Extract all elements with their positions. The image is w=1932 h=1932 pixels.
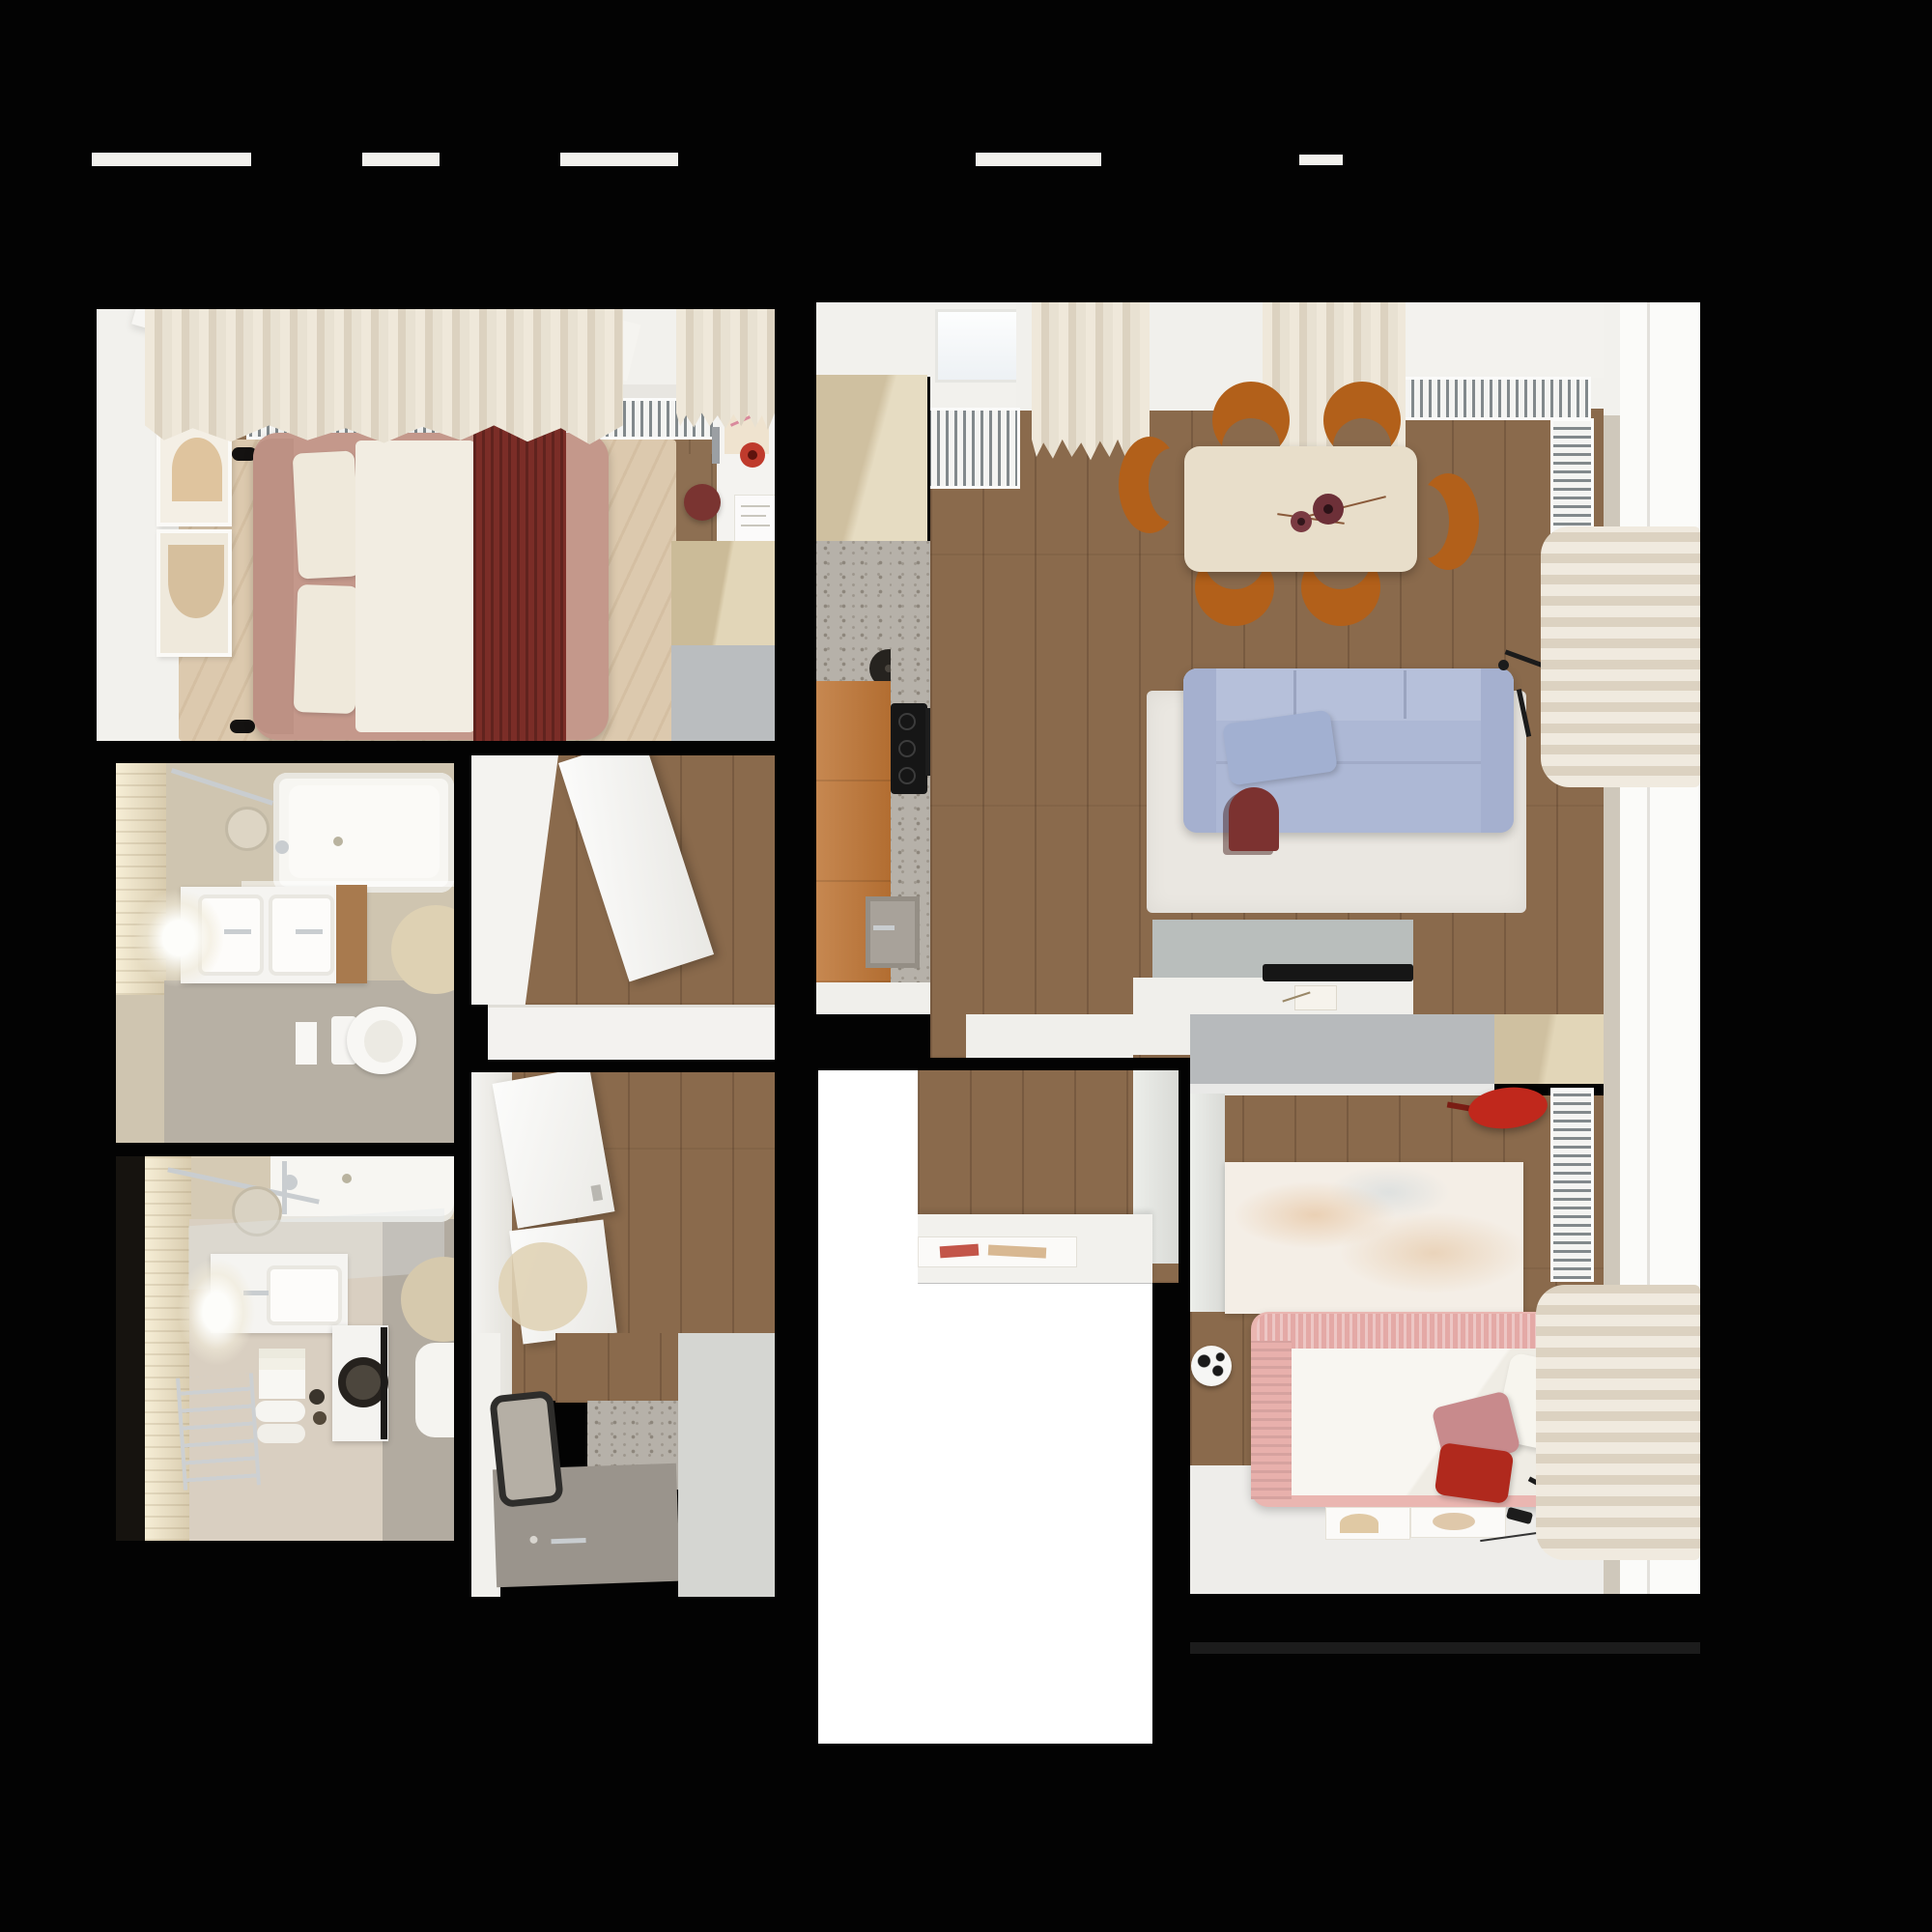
- toilet-bowl: [347, 1007, 416, 1074]
- white-bench: [966, 1014, 1133, 1058]
- sofa-back: [1183, 668, 1514, 721]
- hand-shower: [275, 840, 289, 854]
- floor-plan-canvas: [0, 0, 1932, 1932]
- tub-basin: [289, 785, 440, 878]
- shower-right-wall: [678, 1333, 775, 1597]
- wall-art-frame: [156, 529, 232, 657]
- bed-pillow: [294, 584, 360, 714]
- bed-blanket-red: [473, 423, 566, 741]
- curtains: [1032, 302, 1150, 462]
- bed-headboard: [253, 439, 294, 734]
- curtains-bunched: [1536, 1285, 1700, 1560]
- closet-band: [1190, 1014, 1494, 1084]
- floor-lamp-head: [1498, 660, 1509, 670]
- closet-lip: [1190, 1084, 1494, 1095]
- cooktop: [891, 703, 927, 794]
- bed-headboard-cushion: [1257, 1314, 1572, 1349]
- toiletry: [313, 1411, 327, 1425]
- double-bed: [253, 433, 609, 740]
- ground-reflection: [1190, 1642, 1700, 1654]
- hall-bench: [488, 1005, 775, 1060]
- dining-chair: [1119, 437, 1180, 533]
- sink: [267, 1265, 342, 1325]
- bed-blanket: [1251, 1341, 1292, 1499]
- round-mirror: [178, 1258, 255, 1366]
- art-shape: [168, 545, 224, 618]
- room-living-dining: [930, 302, 1604, 1058]
- wall-lamp: [230, 720, 255, 733]
- kitchen-sink: [866, 896, 920, 968]
- pillow-red: [1435, 1442, 1515, 1504]
- washing-machine: [332, 1325, 388, 1441]
- faucet: [873, 925, 895, 930]
- dark-red-vase: [1313, 494, 1344, 525]
- curtains: [145, 309, 623, 444]
- red-vase: [740, 442, 765, 468]
- shower-rail: [171, 768, 273, 806]
- dark-red-vase: [1291, 511, 1312, 532]
- towel-radiator: [176, 1373, 261, 1490]
- red-side-table: [1229, 787, 1279, 851]
- washer-trim: [381, 1327, 387, 1439]
- artwork-rug: [1225, 1162, 1523, 1314]
- closet-gray: [671, 645, 775, 741]
- sofa-arm: [1183, 668, 1216, 833]
- dark-mirror: [489, 1390, 564, 1508]
- upper-cabinet: [816, 375, 927, 541]
- floor-artwork: [1410, 1507, 1506, 1538]
- round-rug: [498, 1242, 587, 1331]
- room-corridor: [471, 1072, 775, 1597]
- vase-mouth: [748, 450, 757, 460]
- wardrobe: [671, 541, 775, 645]
- dining-table: [1184, 446, 1417, 572]
- towel-roll: [257, 1424, 305, 1443]
- radiator: [930, 408, 1020, 489]
- room-bathroom-bottom: [116, 1156, 454, 1541]
- wall-tick: [976, 153, 1101, 166]
- shower-room-floor: [555, 1333, 678, 1403]
- towel-stack: [259, 1349, 305, 1399]
- faucet: [224, 929, 251, 934]
- desk-papers: [734, 495, 775, 545]
- kitchen-wall-top: [816, 302, 930, 377]
- bathtub: [273, 773, 454, 893]
- towel-roll: [255, 1401, 305, 1422]
- bed-duvet: [355, 440, 475, 732]
- football: [1191, 1346, 1232, 1386]
- toilet: [415, 1343, 454, 1437]
- vanity-wood-panel: [336, 885, 367, 983]
- lumbar-pillow: [1222, 710, 1338, 786]
- tray-handle: [551, 1538, 585, 1544]
- tub-drain: [342, 1174, 352, 1183]
- curtains-bunched: [1541, 526, 1700, 787]
- red-stool: [684, 484, 721, 521]
- flush-plate: [296, 1022, 317, 1065]
- room-master-bedroom: [97, 309, 775, 741]
- tub-drain: [333, 837, 343, 846]
- room-bathroom-top: [116, 763, 454, 1143]
- top-corner-wall: [1604, 302, 1620, 415]
- cabinet-handle: [712, 427, 720, 464]
- decor-box: [1294, 985, 1337, 1010]
- room-study-nook: [918, 1070, 1179, 1283]
- vertical-radiator: [1550, 1088, 1594, 1282]
- backlit-mirror: [133, 889, 224, 987]
- dark-edge: [116, 1156, 147, 1541]
- wood-block: [1494, 1014, 1604, 1084]
- sink: [269, 895, 334, 976]
- art-shape: [172, 438, 222, 501]
- wall-tick: [560, 153, 678, 166]
- room-entry-hall: [471, 755, 775, 1060]
- wall-tick: [1299, 155, 1343, 165]
- wall-tick: [92, 153, 251, 166]
- toiletry: [309, 1389, 325, 1405]
- kitchen-end-panel: [816, 982, 930, 1014]
- window-pane: [935, 309, 1020, 383]
- wall-tick: [362, 153, 440, 166]
- bed-pillow: [293, 450, 361, 579]
- sofa-arm: [1481, 668, 1514, 833]
- floor-artwork: [1325, 1507, 1410, 1540]
- faucet: [296, 929, 323, 934]
- dining-chair: [1417, 473, 1479, 570]
- room-kitchen: [816, 302, 930, 1014]
- tray-drain: [529, 1536, 537, 1544]
- curtains: [676, 309, 775, 430]
- tv: [1263, 964, 1413, 981]
- shower-head: [225, 807, 270, 851]
- hand-shower: [282, 1175, 298, 1190]
- toilet: [331, 1005, 416, 1076]
- wall-strip: [1190, 1094, 1225, 1312]
- flat-artwork: [918, 1236, 1077, 1267]
